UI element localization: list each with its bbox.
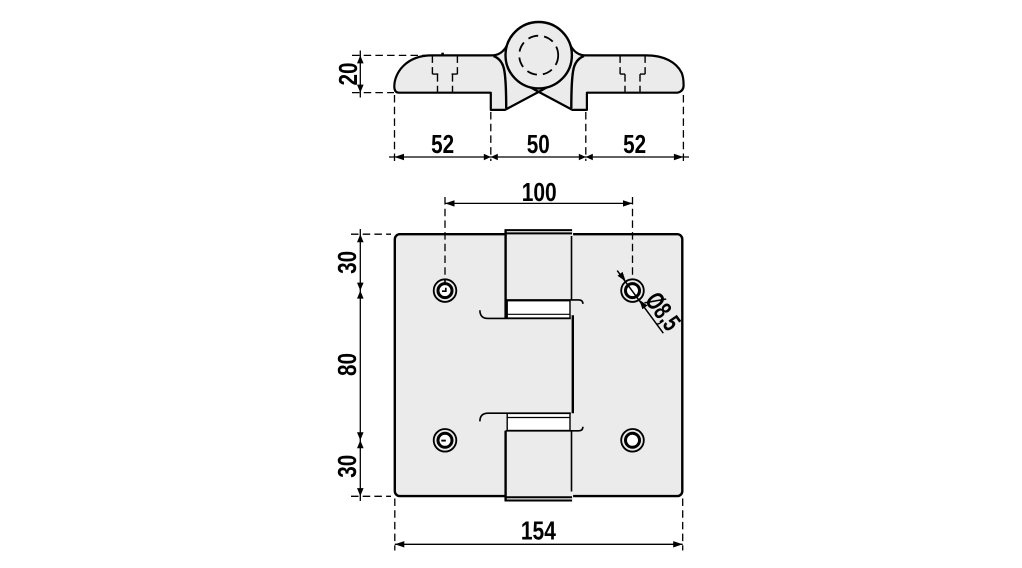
svg-text:20: 20 bbox=[333, 63, 363, 86]
svg-text:52: 52 bbox=[431, 129, 454, 159]
svg-text:30: 30 bbox=[332, 251, 362, 274]
svg-text:52: 52 bbox=[623, 129, 646, 159]
svg-text:100: 100 bbox=[522, 177, 557, 207]
svg-text:80: 80 bbox=[332, 353, 362, 376]
svg-text:154: 154 bbox=[521, 516, 556, 546]
svg-text:50: 50 bbox=[527, 129, 550, 159]
svg-text:30: 30 bbox=[332, 455, 362, 478]
